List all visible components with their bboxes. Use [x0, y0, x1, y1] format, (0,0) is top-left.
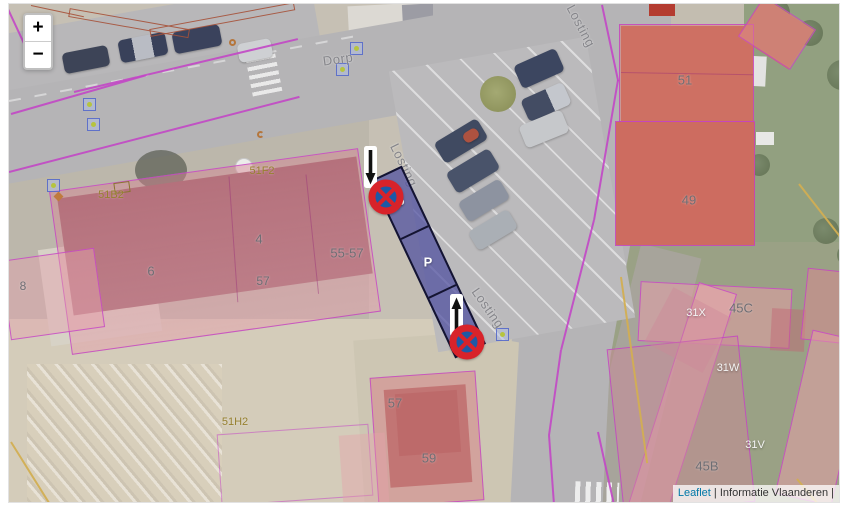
- poi-marker-icon: [229, 39, 236, 46]
- parking-p-label: P: [424, 254, 433, 269]
- parcel-label: 8: [20, 279, 27, 293]
- parcel-label: 57: [256, 274, 269, 288]
- parcel-label: 49: [682, 193, 696, 208]
- attribution-provider: Informatie Vlaanderen: [720, 487, 828, 499]
- address-point-marker: [47, 179, 60, 192]
- parcel-label: 57: [388, 396, 402, 411]
- parcel-label: 45C: [729, 301, 753, 316]
- parcel-49: [615, 121, 755, 246]
- attribution-separator: |: [714, 487, 717, 499]
- parcel-label: 51F2: [249, 165, 274, 177]
- aerial-garage-roofs: [27, 364, 222, 503]
- aerial-white-object: [756, 132, 774, 145]
- parcel-label: 4: [255, 232, 262, 247]
- parcel-label: 31W: [717, 362, 740, 374]
- parcel-57-inner: [395, 390, 461, 456]
- address-point-marker: [87, 118, 100, 131]
- zoom-control: + −: [23, 13, 53, 70]
- attribution-separator: |: [831, 487, 834, 499]
- parcel-label: 45B: [695, 459, 718, 474]
- parcel-label: 51B2: [98, 189, 124, 201]
- attribution-bar: Leaflet | Informatie Vlaanderen |: [673, 485, 839, 502]
- parcel-label: 51H2: [222, 416, 248, 428]
- page: PPP DorpLostingLostingLosting46855-57575…: [0, 0, 845, 514]
- map-canvas[interactable]: PPP DorpLostingLostingLosting46855-57575…: [8, 3, 840, 503]
- parcel-label: 31X: [686, 307, 706, 319]
- address-point-marker: [83, 98, 96, 111]
- poi-marker-icon: [257, 131, 264, 138]
- parcel-label: 59: [422, 451, 436, 466]
- zoom-in-button[interactable]: +: [25, 15, 51, 42]
- zoom-out-button[interactable]: −: [25, 42, 51, 68]
- no-stopping-sign-icon[interactable]: [449, 324, 485, 360]
- no-stopping-sign-icon[interactable]: [368, 179, 404, 215]
- leaflet-attribution-link[interactable]: Leaflet: [678, 487, 711, 499]
- parcel-label: 51: [678, 73, 692, 88]
- parcel-label: 6: [147, 264, 154, 279]
- parcel-strip-small: [339, 432, 390, 503]
- parcel-8: [8, 248, 105, 340]
- tree-roundabout: [480, 76, 516, 112]
- parcel-label: 31V: [745, 439, 765, 451]
- roof: [649, 4, 675, 16]
- parcel-label: 55-57: [330, 246, 363, 261]
